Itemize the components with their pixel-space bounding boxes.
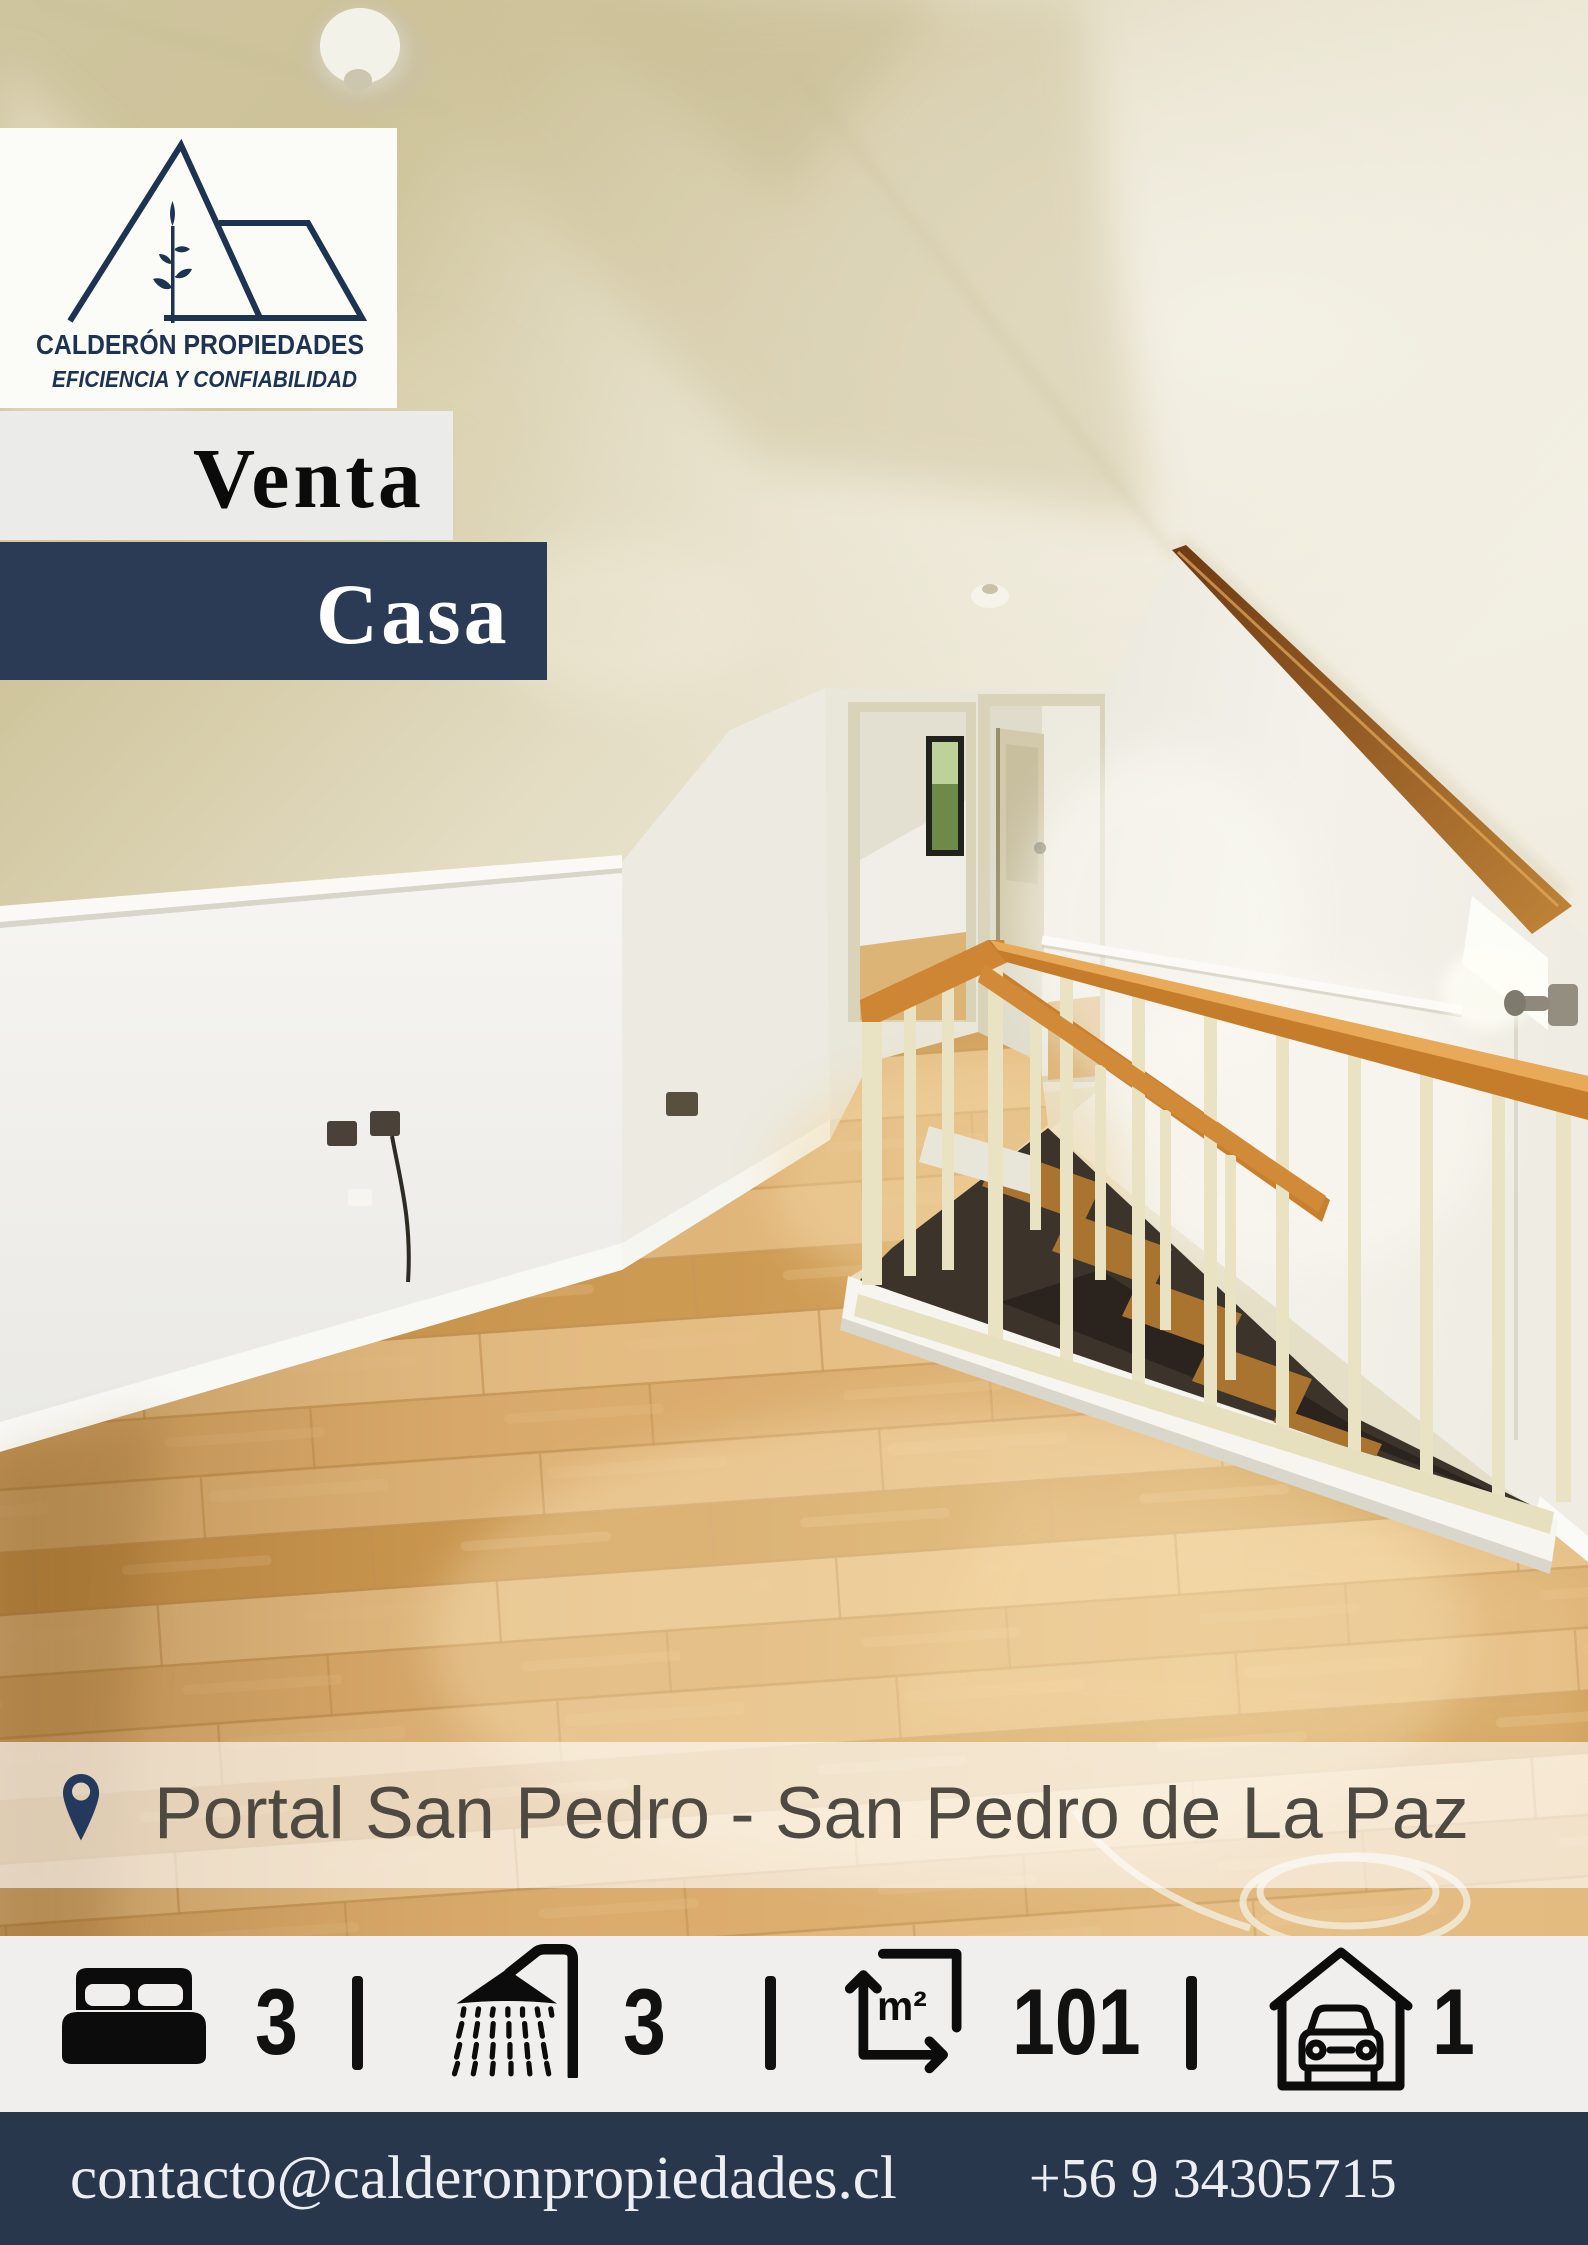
svg-text:m²: m²	[877, 1983, 927, 2029]
svg-text:EFICIENCIA Y CONFIABILIDAD: EFICIENCIA Y CONFIABILIDAD	[52, 366, 357, 392]
svg-text:CALDERÓN PROPIEDADES: CALDERÓN PROPIEDADES	[36, 329, 364, 360]
